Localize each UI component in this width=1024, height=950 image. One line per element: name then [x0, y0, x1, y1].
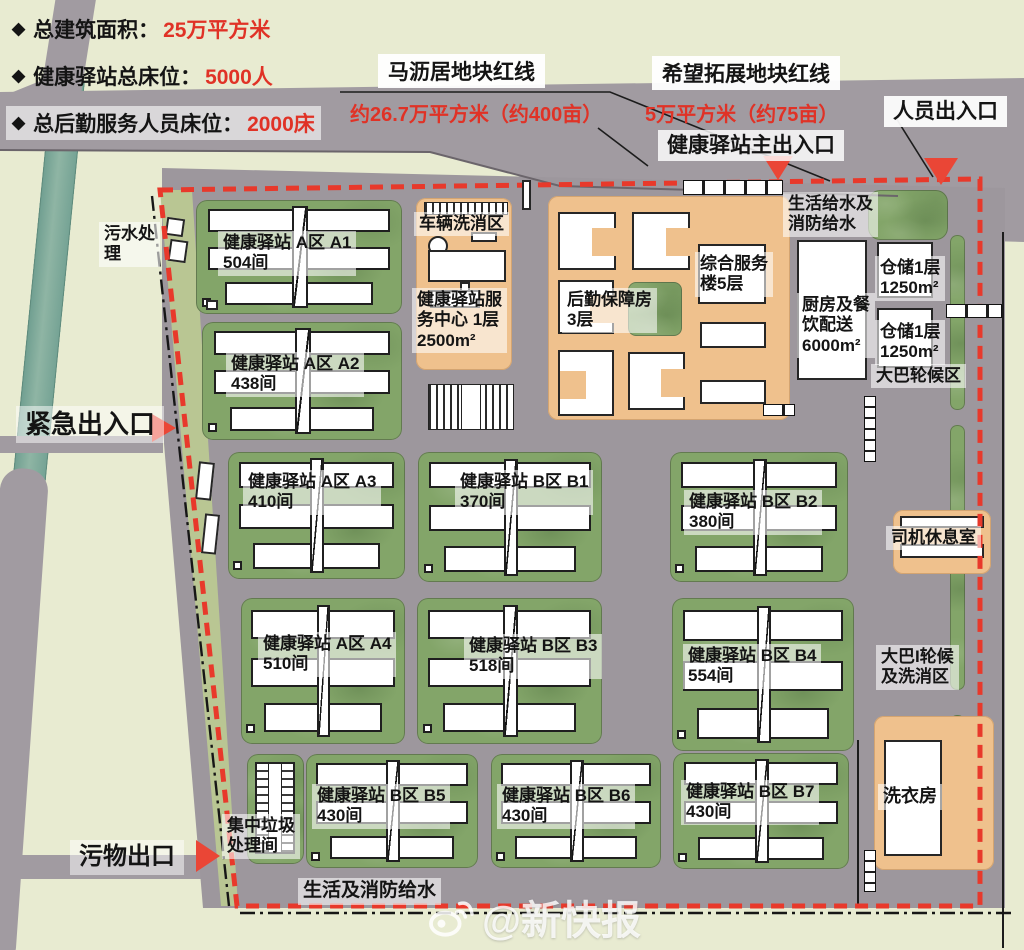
legend-value: 25万平方米 — [163, 14, 270, 44]
garbage-l2: 处理间 — [227, 836, 278, 855]
plot2-title-text: 希望拓展地块红线 — [662, 63, 830, 86]
laundry-label: 洗衣房 — [878, 784, 942, 810]
garbage-l1: 集中垃圾 — [227, 816, 295, 835]
black-boundary-left — [152, 196, 229, 906]
block-a3-rooms: 410间 — [248, 492, 293, 511]
block-a2-label: 健康驿站 A区 A2438间 — [226, 352, 364, 397]
plot1-area-text: 约26.7万平方米（约400亩） — [350, 104, 602, 126]
barrier — [522, 180, 531, 210]
complex-l1: 综合服务 — [700, 254, 768, 273]
service-center-l1: 健康驿站服 — [417, 290, 502, 309]
emergency-entrance-label: 紧急出入口 — [16, 406, 164, 443]
block-b3-name: 健康驿站 B区 B3 — [469, 636, 597, 655]
block-b5-name: 健康驿站 B区 B5 — [317, 786, 445, 805]
service-center-l3: 2500m² — [417, 331, 476, 350]
watermark: @新快报 — [428, 888, 641, 946]
legend-label: 总建筑面积： — [33, 14, 159, 44]
legend-row-beds: ◆健康驿站总床位：5000人 — [6, 59, 321, 93]
watermark-text: @新快报 — [482, 888, 641, 946]
logistics-l2: 3层 — [567, 310, 593, 329]
water-supply-label: 生活给水及消防给水 — [783, 192, 878, 237]
vehicle-wash-label: 车辆洗消区 — [414, 212, 509, 236]
logistics-l1: 后勤保障房 — [567, 290, 652, 309]
garbage-label: 集中垃圾处理间 — [222, 814, 300, 859]
storage2-l1: 仓储1层 — [880, 322, 940, 341]
block-b7-name: 健康驿站 B区 B7 — [686, 782, 814, 801]
water-supply-l2: 消防给水 — [788, 214, 856, 233]
diamond-bullet-icon: ◆ — [12, 66, 25, 86]
block-b2-name: 健康驿站 B区 B2 — [689, 492, 817, 511]
block-b6-name: 健康驿站 B区 B6 — [502, 786, 630, 805]
block-a1-rooms: 504间 — [223, 253, 268, 272]
weibo-icon — [428, 896, 474, 938]
legend-row-area: ◆总建筑面积：25万平方米 — [6, 12, 321, 46]
block-b7-label: 健康驿站 B区 B7430间 — [681, 780, 819, 825]
block-a4-label: 健康驿站 A区 A4510间 — [258, 632, 396, 677]
person-entrance-marker — [924, 158, 958, 185]
legend-label: 总后勤服务人员床位： — [33, 108, 243, 138]
block-b4-name: 健康驿站 B区 B4 — [688, 646, 816, 665]
main-gate — [683, 180, 783, 195]
block-a3-name: 健康驿站 A区 A3 — [248, 472, 376, 491]
water-supply-l1: 生活给水及 — [788, 194, 873, 213]
block-b5-label: 健康驿站 B区 B5430间 — [312, 784, 450, 829]
block-b4-rooms: 554间 — [688, 666, 733, 685]
legend-label: 健康驿站总床位： — [33, 61, 201, 91]
block-b5-rooms: 430间 — [317, 806, 362, 825]
legend-value: 5000人 — [205, 61, 273, 91]
bus-wash-l2: 及洗消区 — [881, 667, 949, 686]
block-b4-label: 健康驿站 B区 B4554间 — [683, 644, 821, 689]
block-a1-name: 健康驿站 A区 A1 — [223, 233, 351, 252]
legend-row-staff: ◆总后勤服务人员床位：2000床 — [6, 106, 321, 140]
waste-exit-marker — [196, 840, 220, 872]
block-b3-label: 健康驿站 B区 B3518间 — [464, 634, 602, 679]
bus-wash-l1: 大巴I轮候 — [881, 647, 954, 666]
kitchen-label: 厨房及餐饮配送6000m² — [797, 293, 875, 358]
plot1-title: 马沥居地块红线 — [378, 54, 545, 88]
block-b3-rooms: 518间 — [469, 656, 514, 675]
driver-rest-label: 司机休息室 — [886, 526, 981, 550]
plot2-area-text: 5万平方米（约75亩） — [645, 104, 838, 126]
person-entrance-label: 人员出入口 — [884, 96, 1007, 127]
diamond-bullet-icon: ◆ — [12, 19, 25, 39]
kitchen-l1: 厨房及餐 — [802, 295, 870, 314]
driver-rest-text: 司机休息室 — [891, 528, 976, 547]
sewage-text: 污水处 — [104, 224, 155, 243]
logistics-label: 后勤保障房3层 — [562, 288, 657, 333]
kitchen-l2: 饮配送 — [802, 315, 853, 334]
block-b2-label: 健康驿站 B区 B2380间 — [684, 490, 822, 535]
barrier — [763, 404, 795, 416]
storage1-l2: 1250m² — [880, 278, 939, 297]
plot1-title-text: 马沥居地块红线 — [388, 61, 535, 84]
side-gate — [946, 304, 1002, 318]
block-b1-name: 健康驿站 B区 B1 — [460, 472, 588, 491]
main-entrance-label: 健康驿站主出入口 — [658, 130, 844, 161]
storage2-label: 仓储1层1250m² — [875, 320, 945, 365]
plot2-area: 5万平方米（约75亩） — [645, 98, 838, 127]
barrier — [864, 850, 876, 892]
diamond-bullet-icon: ◆ — [12, 113, 25, 133]
block-a4-name: 健康驿站 A区 A4 — [263, 634, 391, 653]
waste-exit-text: 污物出口 — [79, 843, 175, 870]
block-a3-label: 健康驿站 A区 A3410间 — [243, 470, 381, 515]
water-bottom-label: 生活及消防给水 — [298, 878, 441, 905]
block-b2-rooms: 380间 — [689, 512, 734, 531]
service-center-l2: 务中心 1层 — [417, 310, 499, 329]
storage1-l1: 仓储1层 — [880, 258, 940, 277]
waste-exit-label: 污物出口 — [70, 840, 184, 875]
bus-wait-text: 大巴轮候区 — [876, 366, 961, 385]
water-bottom-text: 生活及消防给水 — [303, 880, 436, 901]
main-entrance-text: 健康驿站主出入口 — [667, 134, 835, 157]
emergency-entrance-text: 紧急出入口 — [25, 409, 155, 439]
person-entrance-text: 人员出入口 — [893, 100, 998, 123]
site-plan: 健康驿站 A区 A1504间 健康驿站 A区 A2438间 健康驿站 A区 A3… — [0, 0, 1024, 950]
bus-wash-label: 大巴I轮候及洗消区 — [876, 645, 959, 690]
sewage-text2: 理 — [104, 244, 121, 263]
plot1-area: 约26.7万平方米（约400亩） — [350, 98, 602, 127]
block-a2-name: 健康驿站 A区 A2 — [231, 354, 359, 373]
vehicle-wash-text: 车辆洗消区 — [419, 214, 504, 233]
block-b7-rooms: 430间 — [686, 802, 731, 821]
sewage-label: 污水处理 — [99, 222, 160, 267]
complex-label: 综合服务楼5层 — [695, 252, 773, 297]
service-center-label: 健康驿站服务中心 1层2500m² — [412, 288, 507, 353]
storage2-l2: 1250m² — [880, 342, 939, 361]
block-b6-label: 健康驿站 B区 B6430间 — [497, 784, 635, 829]
block-b1-label: 健康驿站 B区 B1370间 — [455, 470, 593, 515]
laundry-text: 洗衣房 — [883, 786, 937, 806]
leader-line-main-gate — [598, 128, 648, 166]
block-a2-rooms: 438间 — [231, 374, 276, 393]
barrier — [864, 396, 876, 462]
block-b6-rooms: 430间 — [502, 806, 547, 825]
bus-wait-label: 大巴轮候区 — [871, 364, 966, 388]
legend: ◆总建筑面积：25万平方米 ◆健康驿站总床位：5000人 ◆总后勤服务人员床位：… — [6, 12, 321, 153]
plot2-title: 希望拓展地块红线 — [652, 56, 840, 90]
kitchen-l3: 6000m² — [802, 336, 861, 355]
storage1-label: 仓储1层1250m² — [875, 256, 945, 301]
complex-l2: 楼5层 — [700, 274, 743, 293]
block-b1-rooms: 370间 — [460, 492, 505, 511]
block-a1-label: 健康驿站 A区 A1504间 — [218, 231, 356, 276]
block-a4-rooms: 510间 — [263, 654, 308, 673]
legend-value: 2000床 — [247, 108, 315, 138]
